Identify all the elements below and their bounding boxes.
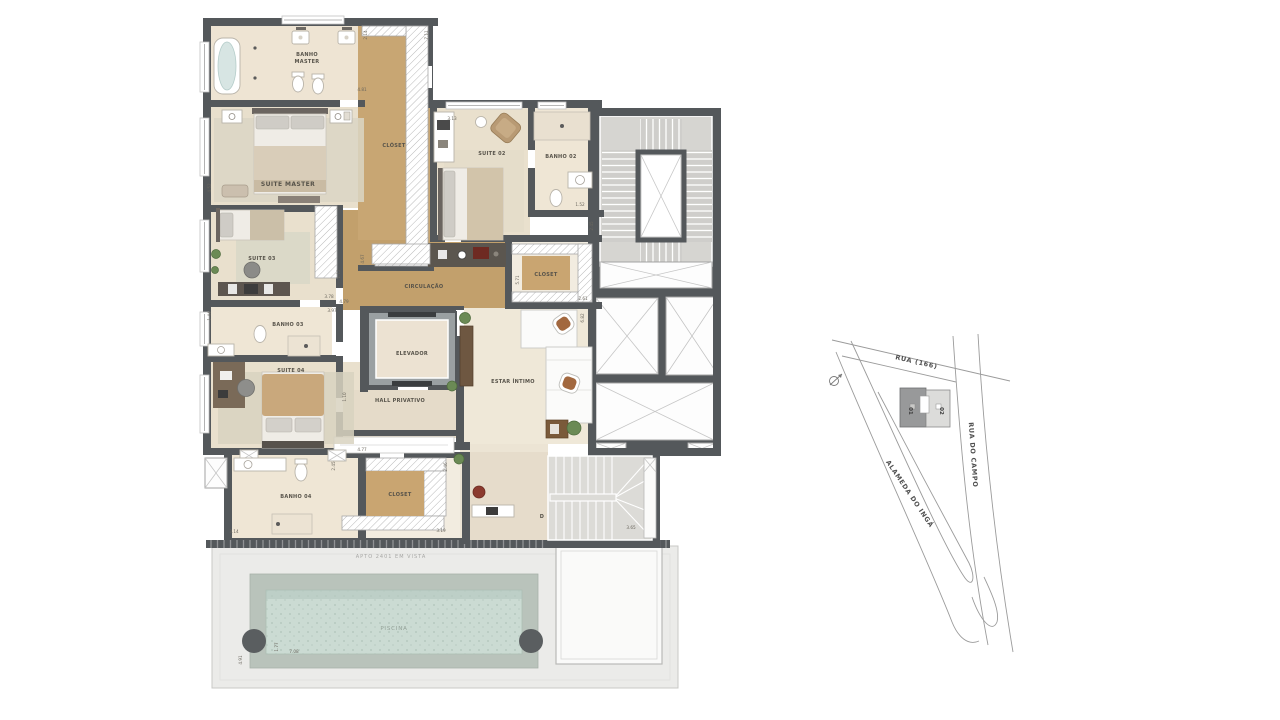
street-label-alameda: ALAMEDA DO INGÁ	[884, 458, 936, 529]
internal-staircase	[548, 456, 656, 540]
dim-label: 1.12	[336, 269, 341, 279]
site-map: 01 02 RUA (166) RUA DO CAMPO ALAMEDA DO …	[830, 334, 1014, 652]
dim-label: 2.45	[589, 221, 594, 231]
linen-closet	[372, 244, 430, 264]
label-hall-privativo: HALL PRIVATIVO	[375, 398, 425, 404]
dim-label: 4.81	[357, 87, 367, 92]
dim-label: 7.08	[289, 649, 299, 654]
stair-core	[588, 108, 721, 456]
vanity-banho-03	[208, 344, 234, 356]
bed-suite-04	[262, 372, 324, 448]
window-left-3	[200, 220, 209, 272]
dim-label: 1.44	[207, 311, 212, 321]
vanity-banho-04	[234, 458, 286, 471]
label-closet-04: CLOSET	[388, 492, 411, 498]
plant-hall	[447, 381, 457, 391]
elevator-shaft-2	[666, 297, 718, 375]
label-suite-04: SUITE 04	[277, 368, 305, 374]
label-banho-02: BANHO 02	[545, 154, 577, 160]
dim-label: 3.65	[626, 525, 636, 530]
bathtub	[214, 38, 240, 94]
dim-label: 2.46	[443, 462, 448, 472]
pool-label: PISCINA	[380, 626, 407, 632]
private-elevator	[368, 312, 456, 386]
ottoman	[222, 185, 248, 197]
dim-label: 4.91	[238, 655, 243, 665]
dim-label: 3.97	[327, 308, 337, 313]
toilet-banho-04	[295, 459, 307, 481]
bed-suite-02	[438, 168, 503, 240]
dim-label: 3.19	[436, 528, 446, 533]
dim-label: 2.45	[331, 461, 336, 471]
plant-suite-03	[212, 250, 221, 259]
apto-note: APTO 2401 EM VISTA	[356, 554, 427, 560]
label-closet-master: CLÓSET	[382, 142, 405, 149]
vanity-banho-02	[568, 172, 592, 188]
svg-text:MASTER: MASTER	[295, 59, 320, 65]
coffee-counter	[428, 243, 506, 267]
label-closet-02: CLOSET	[534, 272, 557, 278]
dim-label: 4.77	[357, 447, 367, 452]
elevator-shaft-1	[596, 298, 658, 374]
shower-banho-03	[288, 336, 320, 356]
shower-banho-04	[272, 514, 312, 534]
label-banho-master: BANHO	[296, 52, 318, 58]
label-circulacao: CIRCULAÇÃO	[405, 283, 444, 290]
window-top-1	[282, 16, 344, 24]
floorplan-canvas: PISCINA APTO 2401 EM VISTA	[0, 0, 1280, 720]
label-banho-04: BANHO 04	[280, 494, 312, 500]
stair-void	[638, 152, 684, 240]
window-left-1	[200, 42, 209, 92]
toilet-banho-02	[550, 190, 562, 207]
label-elevador: ELEVADOR	[396, 351, 428, 357]
nightstand-right	[330, 110, 352, 123]
dim-label: 3.78	[324, 294, 334, 299]
building-footprint: 01 02	[900, 388, 950, 427]
north-arrow-icon	[830, 374, 843, 386]
terrace-panel	[556, 546, 662, 664]
dim-label: 4.52	[207, 183, 212, 193]
road-alameda	[851, 341, 973, 582]
bed-bench	[278, 196, 320, 203]
dim-label: 5.71	[515, 275, 520, 285]
street-label-rua-do-campo: RUA DO CAMPO	[967, 422, 980, 488]
label-suite-02: SUITE 02	[478, 151, 506, 157]
floorplan-page: PISCINA APTO 2401 EM VISTA	[0, 0, 1280, 720]
nightstand-suite-04-r	[328, 450, 346, 461]
window-top-2	[446, 102, 522, 109]
window-top-3	[538, 102, 566, 109]
duct-shaft	[205, 458, 227, 488]
terrace-deck: PISCINA APTO 2401 EM VISTA	[212, 546, 678, 688]
label-banho-03: BANHO 03	[272, 322, 304, 328]
planter-right	[519, 629, 543, 653]
label-estar-intimo: ESTAR ÍNTIMO	[491, 377, 535, 385]
label-suite-03: SUITE 03	[248, 256, 276, 262]
road-rua-do-campo	[953, 336, 988, 645]
dim-label: 1.10	[342, 392, 347, 402]
shower-banho-02	[534, 112, 590, 140]
side-table-suite-02	[476, 117, 487, 128]
window-left-5	[200, 375, 209, 433]
dim-label: 7.11	[424, 30, 429, 40]
dim-label: 1.77	[274, 642, 279, 652]
shaft-landing	[600, 262, 712, 288]
dim-label: 3.14	[229, 529, 239, 534]
wardrobe-suite-03	[315, 206, 337, 278]
toilet-banho-03	[254, 326, 266, 343]
nightstand-left	[222, 110, 242, 123]
dim-label: 2.14	[363, 30, 368, 40]
dim-label: 6.82	[580, 313, 585, 323]
label-stair-direction: D	[540, 514, 544, 520]
window-left-2	[200, 118, 209, 176]
dim-label: 4.79	[339, 299, 349, 304]
dim-label: 2.61	[578, 296, 588, 301]
main-staircase	[600, 116, 712, 266]
street-label-rua-166: RUA (166)	[895, 353, 939, 371]
bed-suite-03	[216, 208, 284, 242]
dim-label: 4.67	[360, 254, 365, 264]
tower-02-label: 02	[938, 407, 944, 415]
tower-01-label: 01	[907, 407, 913, 415]
dim-label: 3.13	[447, 116, 457, 121]
bidet-master	[312, 74, 324, 94]
label-suite-master: SUITE MASTER	[261, 181, 315, 188]
dim-label: 1.52	[575, 202, 585, 207]
toilet-master	[292, 72, 304, 92]
planter-left	[242, 629, 266, 653]
